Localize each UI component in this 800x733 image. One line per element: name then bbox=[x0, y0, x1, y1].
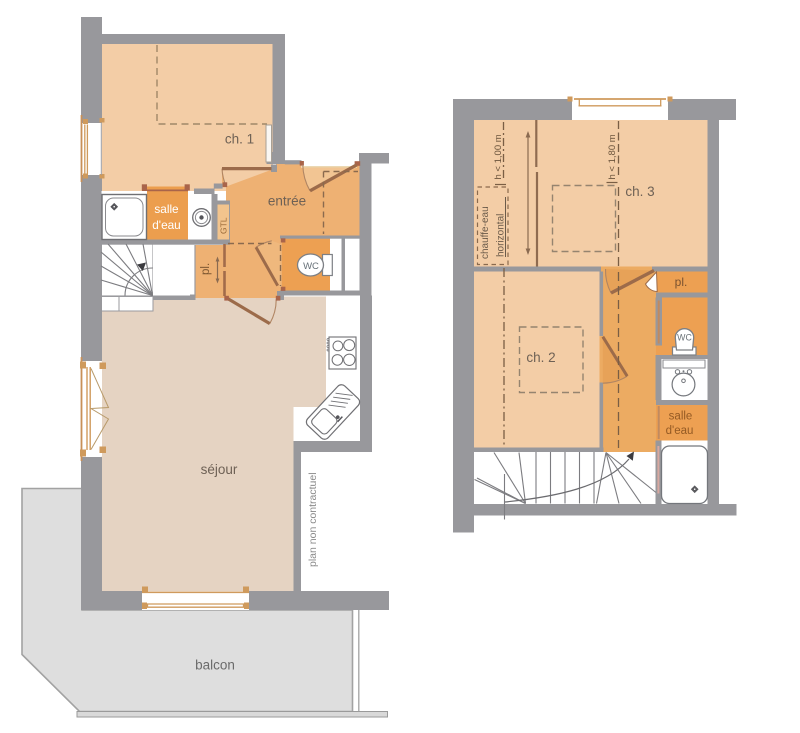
svg-text:pl.: pl. bbox=[200, 263, 212, 275]
svg-text:pl.: pl. bbox=[675, 275, 688, 289]
svg-text:ch. 1: ch. 1 bbox=[225, 132, 254, 147]
svg-text:horizontal: horizontal bbox=[496, 214, 507, 257]
svg-text:h < 1,80 m: h < 1,80 m bbox=[607, 134, 618, 179]
svg-text:d'eau: d'eau bbox=[152, 218, 181, 232]
svg-text:chauffe-eau: chauffe-eau bbox=[480, 206, 491, 259]
svg-text:ch. 3: ch. 3 bbox=[625, 184, 654, 199]
svg-text:salle: salle bbox=[669, 411, 693, 423]
svg-text:WC: WC bbox=[677, 333, 692, 343]
svg-text:GTL: GTL bbox=[219, 217, 229, 234]
svg-text:h < 1,00 m: h < 1,00 m bbox=[493, 134, 504, 179]
svg-text:balcon: balcon bbox=[195, 658, 235, 673]
svg-text:WC: WC bbox=[303, 261, 319, 272]
svg-text:ch. 2: ch. 2 bbox=[526, 350, 555, 365]
svg-text:séjour: séjour bbox=[201, 462, 238, 477]
svg-text:d'eau: d'eau bbox=[666, 425, 694, 437]
svg-text:salle: salle bbox=[154, 202, 179, 216]
svg-text:entrée: entrée bbox=[268, 194, 306, 209]
svg-text:plan non contractuel: plan non contractuel bbox=[307, 472, 319, 567]
